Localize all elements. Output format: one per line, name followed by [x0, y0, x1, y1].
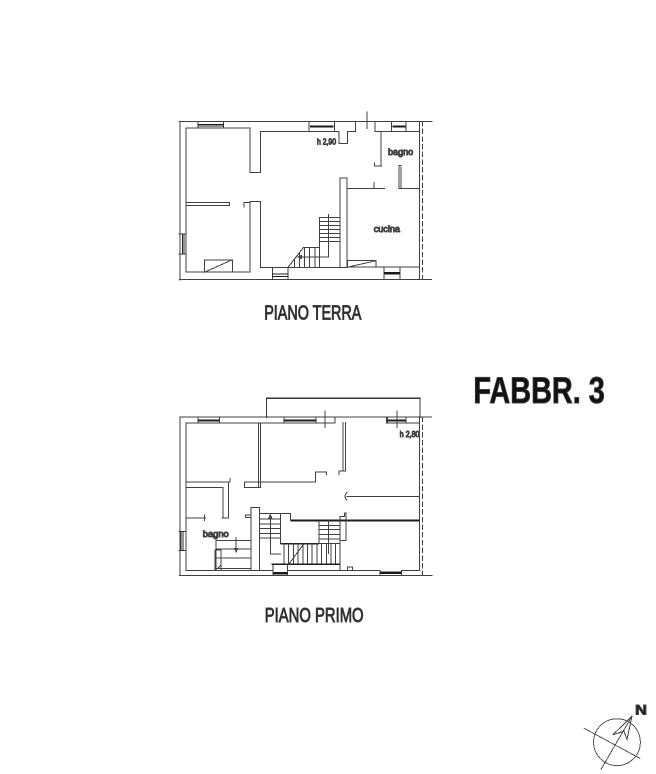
svg-text:h 2,90: h 2,90 [317, 138, 337, 147]
svg-text:h 2,80: h 2,80 [400, 430, 420, 439]
svg-text:N: N [635, 703, 647, 718]
svg-text:cucina: cucina [374, 224, 401, 234]
svg-text:bagno: bagno [203, 529, 229, 539]
svg-text:PIANO PRIMO: PIANO PRIMO [265, 605, 364, 627]
svg-text:FABBR. 3: FABBR. 3 [473, 370, 604, 411]
svg-text:bagno: bagno [388, 147, 413, 157]
svg-text:PIANO TERRA: PIANO TERRA [264, 303, 361, 325]
